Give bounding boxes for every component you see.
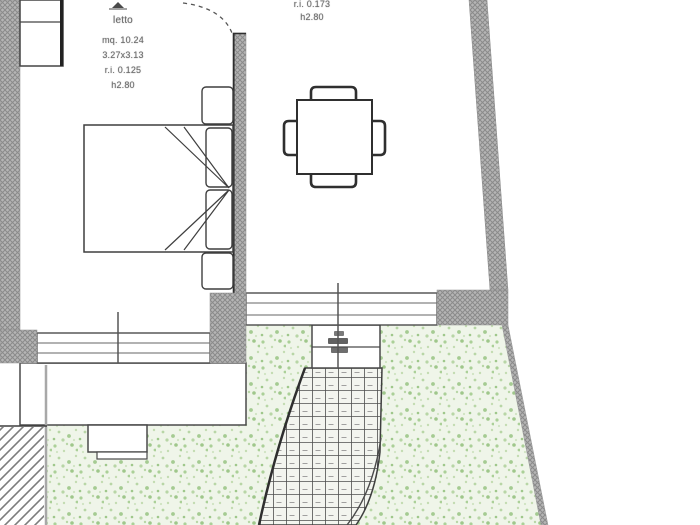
- wardrobe: [20, 0, 63, 66]
- chair-bottom: [311, 174, 356, 187]
- dining-annotations: r.i. 0.173 h2.80: [278, 0, 346, 23]
- bedroom-dimensions-label: 3.27x3.13: [84, 48, 162, 63]
- chair-left: [284, 121, 297, 155]
- ramp-hatch-area: [0, 427, 44, 525]
- nightstand-top: [202, 87, 233, 124]
- wall-left-window-jamb: [0, 330, 37, 363]
- garden-step-upper: [88, 425, 147, 452]
- dining-table-icon: [284, 87, 385, 187]
- dining-light-ratio-label: r.i. 0.173: [278, 0, 346, 11]
- bed-icon: [84, 125, 233, 252]
- wall-center-jamb: [210, 293, 246, 363]
- floor-plan: letto mq. 10.24 3.27x3.13 r.i. 0.125 h2.…: [0, 0, 700, 525]
- wall-left: [0, 0, 20, 330]
- bedroom-area-label: mq. 10.24: [84, 33, 162, 48]
- nightstand-bottom: [202, 253, 233, 289]
- terrace: [20, 363, 246, 425]
- wall-right-slanted: [469, 0, 508, 290]
- dining-height-label: h2.80: [278, 11, 346, 24]
- chair-top: [311, 87, 356, 100]
- bedroom-annotations: letto mq. 10.24 3.27x3.13 r.i. 0.125 h2.…: [84, 13, 162, 93]
- bedroom-height-label: h2.80: [84, 78, 162, 93]
- door-swing-arc-icon: [183, 3, 232, 33]
- chair-right: [372, 121, 385, 155]
- wall-partition: [233, 33, 246, 295]
- garden-step-lower: [97, 452, 147, 459]
- bedroom-window: [37, 312, 210, 363]
- ceiling-symbol-icon: [109, 2, 127, 9]
- bedroom-room-name: letto: [84, 13, 162, 28]
- bedroom-light-ratio-label: r.i. 0.125: [84, 63, 162, 78]
- wall-right-jamb: [437, 290, 508, 325]
